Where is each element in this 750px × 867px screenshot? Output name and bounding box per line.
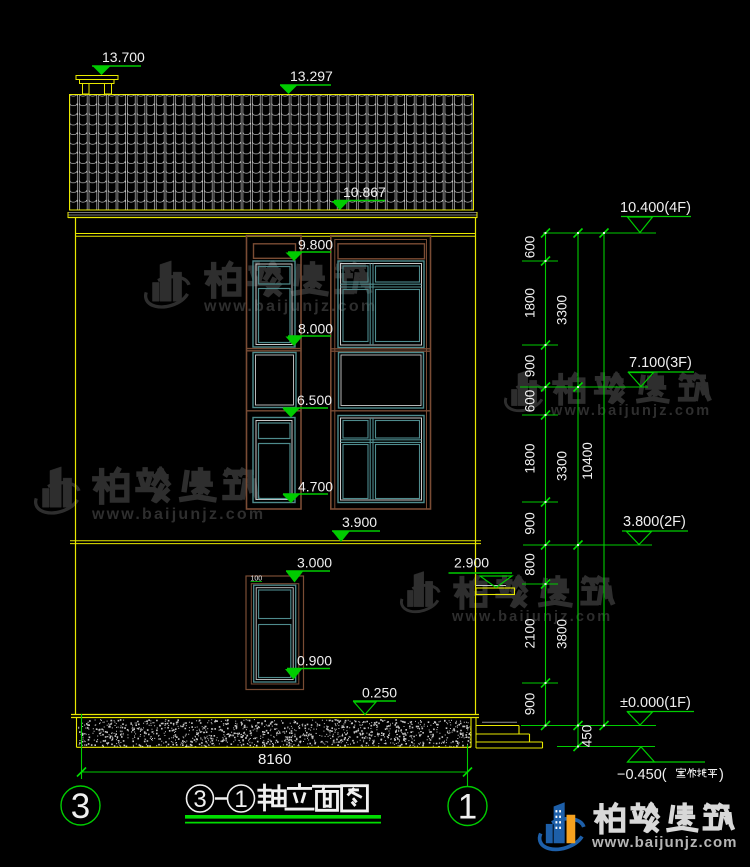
- svg-text:www.baijunjz.com: www.baijunjz.com: [591, 834, 737, 851]
- svg-text:3.900: 3.900: [342, 514, 377, 530]
- svg-text:3800: 3800: [555, 619, 570, 649]
- svg-text:3: 3: [193, 786, 206, 813]
- svg-text:1: 1: [234, 786, 247, 813]
- svg-text:3300: 3300: [555, 295, 570, 325]
- svg-text:9.800: 9.800: [298, 237, 333, 253]
- svg-text:3300: 3300: [555, 451, 570, 481]
- svg-text:13.700: 13.700: [102, 49, 145, 65]
- svg-text:10.867: 10.867: [343, 184, 386, 200]
- svg-text:7.100(3F): 7.100(3F): [629, 355, 692, 371]
- svg-text:4.700: 4.700: [298, 479, 333, 495]
- svg-text:3.800(2F): 3.800(2F): [623, 514, 686, 530]
- svg-text:±0.000(1F): ±0.000(1F): [620, 695, 691, 711]
- svg-text:www.baijunjz.com: www.baijunjz.com: [91, 506, 265, 523]
- svg-text:1: 1: [458, 788, 477, 827]
- svg-text:0.900: 0.900: [297, 653, 332, 669]
- svg-text:): ): [719, 767, 724, 783]
- svg-text:8160: 8160: [258, 751, 291, 768]
- svg-text:600: 600: [523, 236, 538, 259]
- svg-text:900: 900: [523, 512, 538, 535]
- svg-text:10400: 10400: [580, 442, 595, 480]
- svg-text:2100: 2100: [523, 618, 538, 648]
- svg-text:450: 450: [580, 725, 595, 748]
- svg-text:10.400(4F): 10.400(4F): [620, 200, 691, 216]
- svg-text:6.500: 6.500: [297, 392, 332, 408]
- svg-text:3.000: 3.000: [297, 555, 332, 571]
- svg-text:1800: 1800: [523, 288, 538, 318]
- svg-text:−0.450(: −0.450(: [617, 767, 667, 783]
- svg-text:www.baijunjz.com: www.baijunjz.com: [550, 403, 711, 419]
- svg-text:3: 3: [71, 787, 90, 826]
- svg-text:800: 800: [523, 553, 538, 576]
- svg-text:600: 600: [523, 390, 538, 413]
- svg-text:2.900: 2.900: [454, 555, 489, 571]
- svg-text:900: 900: [523, 355, 538, 378]
- svg-text:13.297: 13.297: [290, 68, 333, 84]
- svg-text:1800: 1800: [523, 443, 538, 473]
- svg-text:8.000: 8.000: [298, 321, 333, 337]
- svg-text:900: 900: [523, 693, 538, 716]
- svg-text:0.250: 0.250: [362, 685, 397, 701]
